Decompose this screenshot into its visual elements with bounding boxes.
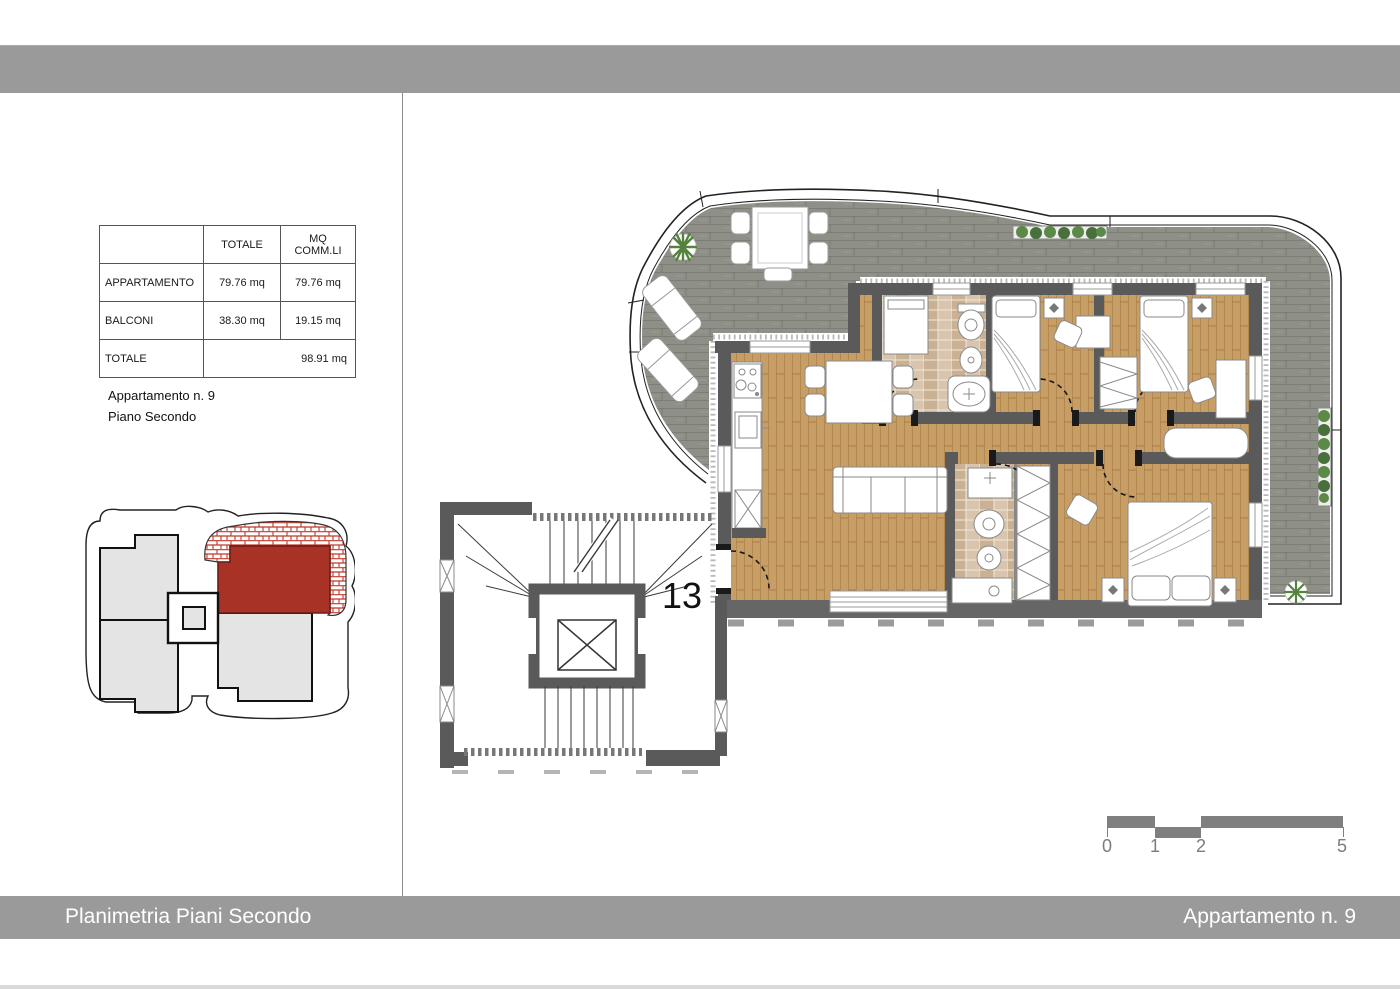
bottom-margin-strip bbox=[0, 939, 1400, 985]
row-totale: 79.76 mq bbox=[204, 264, 281, 302]
row-mq-commli: 19.15 mq bbox=[281, 302, 356, 340]
scale-bar: 0 1 2 5 bbox=[1105, 812, 1347, 862]
key-plan-highlighted-unit bbox=[218, 546, 330, 613]
unit-number-label: 13 bbox=[662, 575, 702, 616]
key-plan bbox=[80, 503, 355, 723]
desk bbox=[1216, 360, 1246, 418]
sofa bbox=[833, 467, 947, 513]
terrace-table bbox=[752, 207, 808, 269]
table-header-row: TOTALE MQ COMM.LI bbox=[100, 226, 356, 264]
scale-label-2: 2 bbox=[1196, 836, 1206, 857]
washer bbox=[884, 296, 928, 354]
elevator bbox=[526, 589, 648, 683]
row-total-merged: 98.91 mq bbox=[204, 340, 356, 378]
table-row: TOTALE 98.91 mq bbox=[100, 340, 356, 378]
shower bbox=[952, 578, 1012, 603]
planter-top bbox=[1013, 226, 1107, 239]
table-row: APPARTAMENTO 79.76 mq 79.76 mq bbox=[100, 264, 356, 302]
scale-label-1: 1 bbox=[1150, 836, 1160, 857]
bidet bbox=[960, 347, 982, 373]
floor-plan: 13 bbox=[402, 93, 1400, 896]
scale-segment-1-2 bbox=[1155, 827, 1201, 838]
header-totale: TOTALE bbox=[204, 226, 281, 264]
dining-table bbox=[826, 361, 892, 423]
planter-right bbox=[1318, 408, 1331, 506]
terrace-plant bbox=[669, 233, 697, 261]
key-plan-stair-core bbox=[168, 593, 218, 643]
header-empty-cell bbox=[100, 226, 204, 264]
row-mq-commli: 79.76 mq bbox=[281, 264, 356, 302]
scale-baseline bbox=[1107, 827, 1344, 828]
scale-segment-2-5 bbox=[1201, 816, 1343, 827]
scale-segment-0-1 bbox=[1107, 816, 1155, 827]
row-totale: 38.30 mq bbox=[204, 302, 281, 340]
header-gray-bar bbox=[0, 46, 1400, 93]
wardrobe bbox=[1100, 357, 1137, 409]
dresser bbox=[1164, 428, 1248, 458]
row-label: APPARTAMENTO bbox=[100, 264, 204, 302]
toilet bbox=[974, 510, 1004, 538]
top-margin-strip bbox=[0, 0, 1400, 46]
stair-treads-lower bbox=[545, 686, 633, 748]
header-mq-commli: MQ COMM.LI bbox=[281, 226, 356, 264]
stair-core: 13 bbox=[440, 502, 727, 772]
hall-wardrobe bbox=[1017, 466, 1050, 600]
table-row: BALCONI 38.30 mq 19.15 mq bbox=[100, 302, 356, 340]
row-label: BALCONI bbox=[100, 302, 204, 340]
footer-gray-bar: Planimetria Piani Secondo Appartamento n… bbox=[0, 896, 1400, 939]
row-label: TOTALE bbox=[100, 340, 204, 378]
bottom-edge-line bbox=[0, 985, 1400, 989]
scale-label-5: 5 bbox=[1337, 836, 1347, 857]
caption-apartment-number: Appartamento n. 9 bbox=[108, 388, 215, 403]
footer-title-right: Appartamento n. 9 bbox=[1183, 905, 1356, 929]
scale-label-0: 0 bbox=[1102, 836, 1112, 857]
bidet bbox=[977, 546, 1001, 570]
caption-floor: Piano Secondo bbox=[108, 409, 196, 424]
footer-title-left: Planimetria Piani Secondo bbox=[65, 905, 311, 929]
area-summary-table: TOTALE MQ COMM.LI APPARTAMENTO 79.76 mq … bbox=[99, 225, 356, 378]
